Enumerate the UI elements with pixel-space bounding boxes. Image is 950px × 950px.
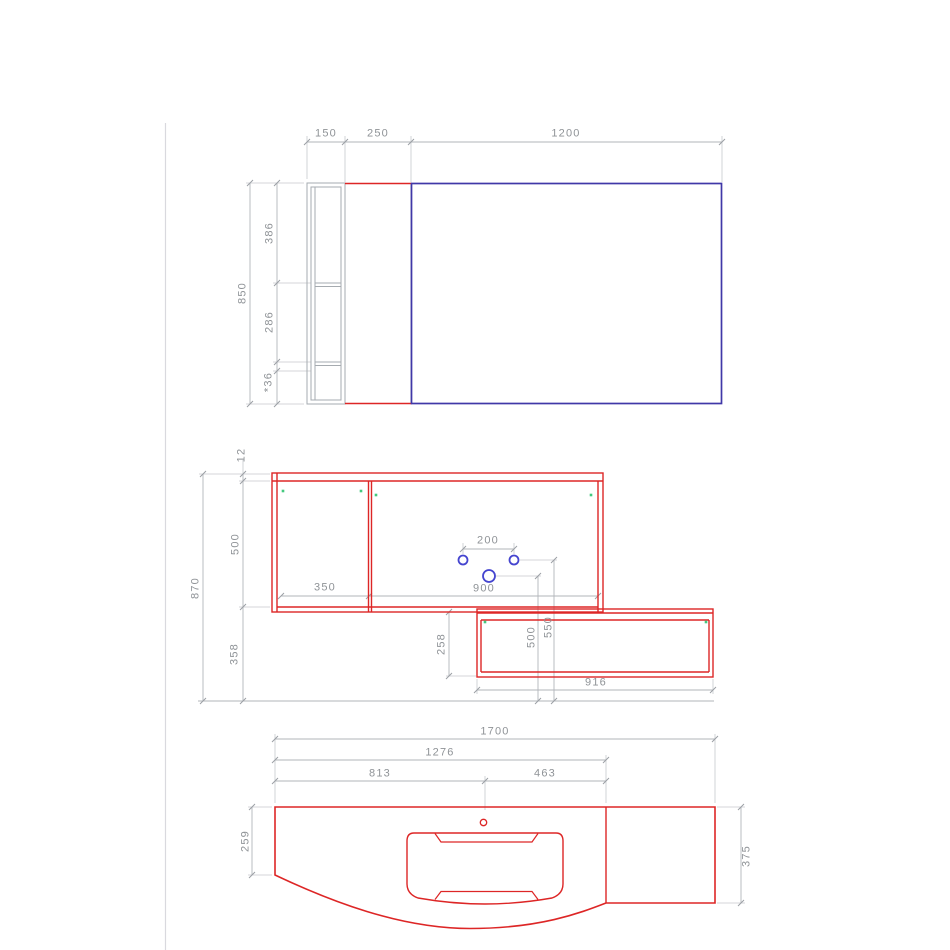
extension-lines [199, 136, 745, 903]
basin-top-ledge [435, 834, 538, 843]
basin-outline [407, 833, 563, 904]
dim-label-counter-width: 1700 [480, 727, 509, 738]
dim-label-right-depth: 375 [742, 845, 753, 867]
hinge-marks [282, 490, 708, 624]
view-countertop-plan [275, 807, 715, 929]
view-upper-front [307, 183, 722, 404]
dim-label-left-door: 350 [314, 583, 336, 594]
drawer-unit [477, 609, 713, 677]
countertop-outline [275, 807, 715, 929]
dim-label-cabinet-height: 500 [231, 533, 242, 555]
dim-label-mirror-width: 1200 [551, 129, 580, 140]
dim-label-small-hole-height: 550 [544, 616, 555, 638]
faucet-hole-right [510, 556, 519, 565]
dim-label-side-width: 150 [315, 129, 337, 140]
dim-label-to-divider: 1276 [425, 748, 454, 759]
dim-label-clearance-below: 358 [230, 643, 241, 665]
basin-bottom-ledge [435, 892, 538, 900]
dim-label-center-to-divider: 463 [534, 769, 556, 780]
hinge-icon [705, 621, 708, 624]
dimension-ticks [200, 139, 744, 906]
hinge-icon [360, 490, 363, 493]
dimension-lines [198, 142, 741, 903]
cad-drawing-page: 150 250 1200 850 386 286 *36 12 500 358 … [0, 0, 950, 950]
mirror-outline [412, 184, 722, 404]
dim-label-left-depth: 259 [241, 830, 252, 852]
side-cabinet [307, 183, 345, 404]
dim-label-right-door: 900 [473, 584, 495, 595]
dim-label-drawer-width: 916 [585, 678, 607, 689]
panel-section [345, 183, 412, 404]
drawing-canvas [0, 0, 950, 950]
dim-label-shelf-mid: 286 [265, 311, 276, 333]
drain-hole [483, 570, 495, 582]
hinge-icon [282, 490, 285, 493]
dim-label-panel-width: 250 [367, 129, 389, 140]
hinge-icon [375, 494, 378, 497]
dim-label-hole-spacing: 200 [477, 536, 499, 547]
dim-label-large-hole-height: 500 [527, 626, 538, 648]
hinge-icon [484, 621, 487, 624]
dim-label-shelf-top: 386 [265, 222, 276, 244]
faucet-hole-plan [480, 819, 486, 825]
dim-label-drawer-height: 258 [437, 633, 448, 655]
dim-label-left-to-center: 813 [369, 769, 391, 780]
dim-label-upper-height: 850 [238, 282, 249, 304]
dim-label-top-thickness: 12 [237, 448, 248, 463]
dim-label-shelf-bottom: *36 [264, 372, 275, 392]
hinge-icon [590, 494, 593, 497]
dim-label-total-height: 870 [191, 577, 202, 599]
mounting-holes [459, 556, 519, 583]
faucet-hole-left [459, 556, 468, 565]
view-vanity-front [272, 473, 713, 677]
